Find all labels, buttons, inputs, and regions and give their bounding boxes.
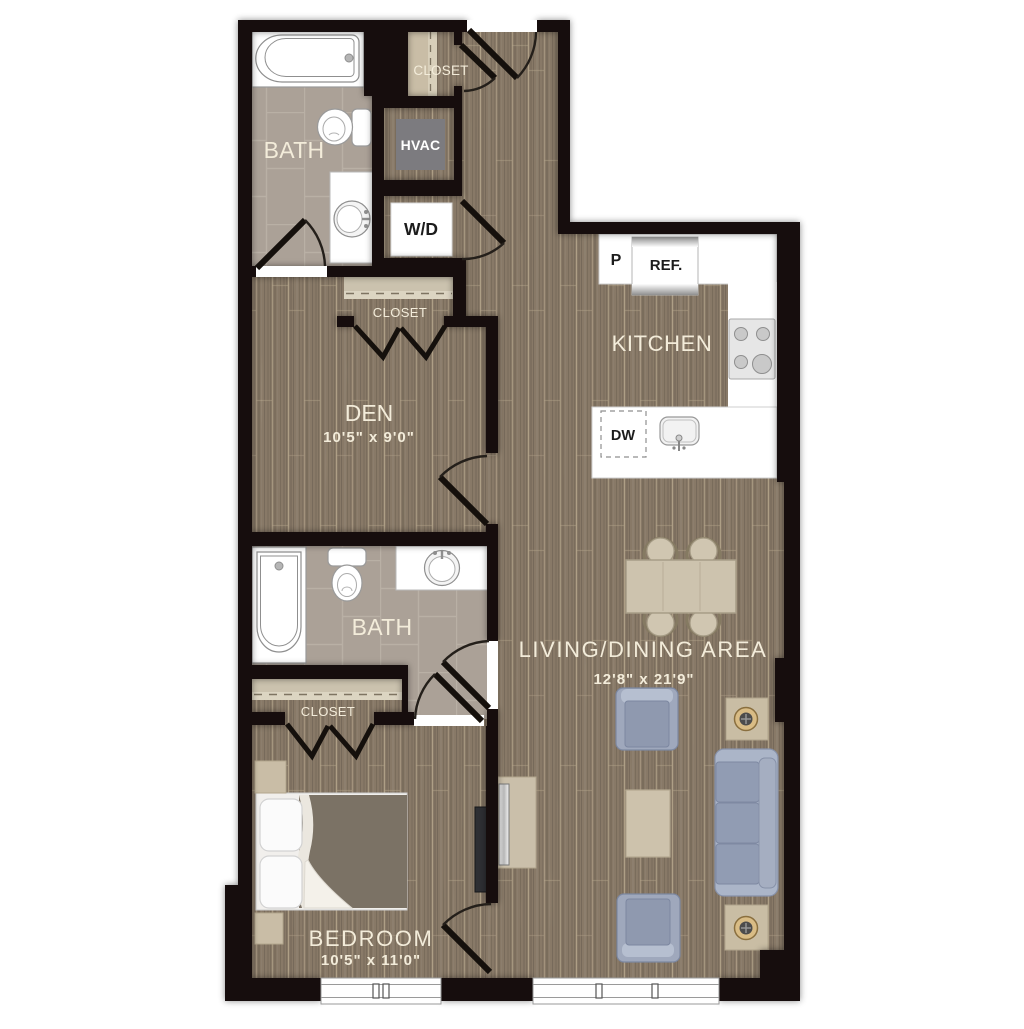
svg-text:BATH: BATH	[352, 614, 413, 640]
svg-text:LIVING/DINING AREA: LIVING/DINING AREA	[519, 637, 768, 662]
svg-text:CLOSET: CLOSET	[301, 704, 355, 719]
svg-text:DEN: DEN	[345, 400, 394, 426]
svg-text:KITCHEN: KITCHEN	[612, 331, 713, 356]
svg-text:HVAC: HVAC	[401, 137, 441, 153]
svg-text:CLOSET: CLOSET	[373, 305, 427, 320]
svg-text:W/D: W/D	[404, 219, 438, 239]
svg-text:10'5" x 11'0": 10'5" x 11'0"	[321, 952, 421, 969]
svg-text:CLOSET: CLOSET	[413, 63, 468, 78]
svg-text:REF.: REF.	[650, 257, 683, 274]
svg-text:BEDROOM: BEDROOM	[309, 926, 434, 951]
svg-text:BATH: BATH	[264, 137, 325, 163]
svg-text:P: P	[611, 252, 622, 269]
svg-text:10'5" x 9'0": 10'5" x 9'0"	[323, 429, 415, 446]
svg-text:12'8" x 21'9": 12'8" x 21'9"	[593, 671, 694, 688]
svg-text:DW: DW	[611, 428, 635, 444]
